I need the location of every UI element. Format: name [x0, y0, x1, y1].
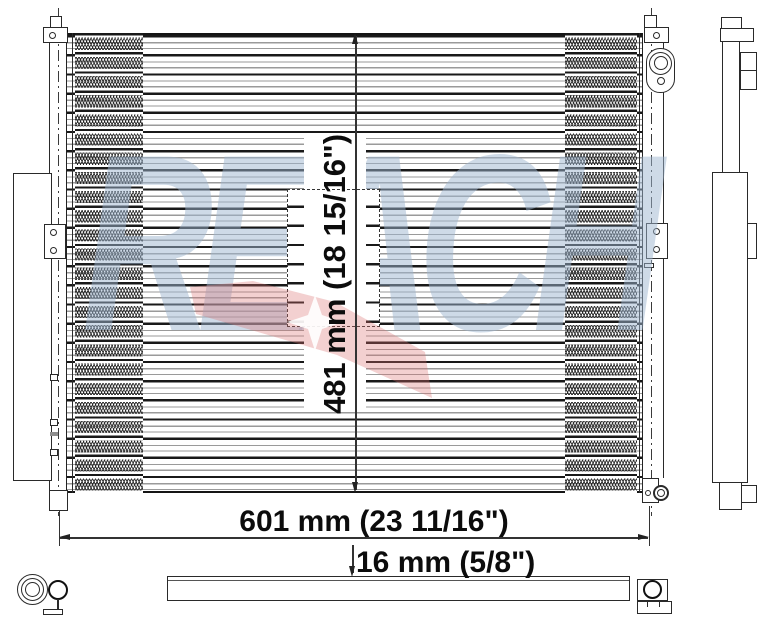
- left-foot-stem: [57, 599, 59, 609]
- width-dim-arrow-left: [59, 534, 70, 540]
- right-header-line: [663, 42, 664, 478]
- arm-gray-tick: [50, 432, 58, 436]
- height-dim-arrow-top: [352, 33, 358, 44]
- side-foot-tab: [741, 485, 757, 503]
- arm-notch-2: [50, 419, 58, 426]
- side-fitting-lower: [740, 70, 757, 90]
- left-header-centerline: [58, 8, 59, 516]
- right-foot-notch-1: [647, 601, 648, 607]
- side-fitting-upper: [740, 52, 757, 71]
- arm-notch-1: [50, 374, 58, 381]
- depth-dim-arrow: [349, 566, 355, 577]
- side-neck: [722, 41, 740, 173]
- right-foot-plate: [637, 601, 672, 614]
- left-mid-bracket-hole-2: [50, 247, 57, 254]
- side-top-cap: [720, 28, 754, 42]
- right-foot-notch-2: [659, 601, 660, 607]
- pipe-ring-inner: [25, 582, 40, 597]
- bottom-right-small-hole: [645, 490, 651, 496]
- width-ext-line-left: [59, 511, 60, 546]
- width-dimension-label: 601 mm (23 11/16"): [200, 505, 548, 539]
- width-dim-arrow-right: [638, 534, 649, 540]
- side-right-tab: [747, 223, 757, 259]
- port-opening-inner: [654, 56, 668, 70]
- bottom-bar-inner-line: [168, 580, 629, 581]
- left-mounting-arm: [13, 173, 52, 481]
- top-left-bracket-hole: [49, 32, 56, 39]
- bottom-left-foot: [49, 490, 68, 511]
- height-dimension-label: 481 mm (18 15/16"): [317, 134, 353, 414]
- depth-dimension-label: 16 mm (5/8"): [356, 546, 535, 580]
- top-right-bracket-hole: [653, 32, 660, 39]
- bottom-right-port-inner: [657, 489, 665, 497]
- technical-drawing-canvas: REACH 481 mm (18 15/16") 601 mm (23 11/1…: [0, 0, 762, 625]
- right-mid-bracket-hole-1: [653, 228, 660, 235]
- pipe-collar-bold: [48, 580, 68, 600]
- side-body: [712, 172, 748, 483]
- tube-end-line-left: [72, 33, 73, 493]
- arm-notch-3: [50, 449, 58, 456]
- port-pilot-hole: [657, 77, 665, 85]
- left-foot-plate: [43, 609, 63, 615]
- right-mid-bracket-hole-2: [653, 246, 660, 253]
- left-mid-bracket-hole-1: [50, 229, 57, 236]
- right-end-port-bold: [643, 580, 662, 599]
- height-dim-arrow-bottom: [352, 482, 358, 493]
- side-foot: [719, 482, 742, 510]
- height-dimension-label-wrap: 481 mm (18 15/16"): [304, 138, 366, 410]
